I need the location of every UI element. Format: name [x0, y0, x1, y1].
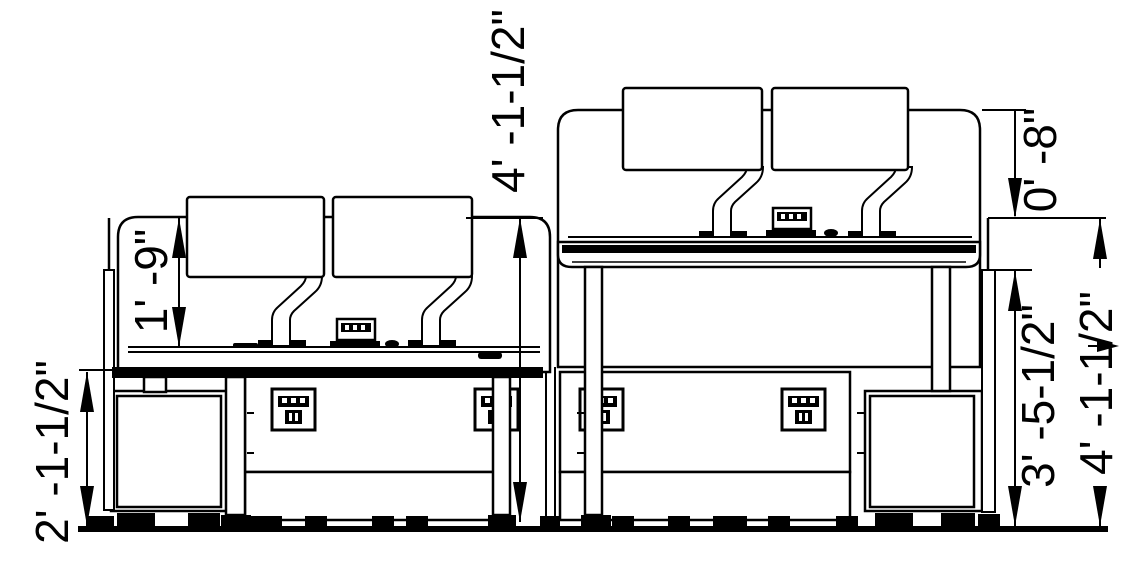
- dimension-label-right-screen-height: 3' -5-1/2": [1015, 304, 1061, 488]
- monitor: [333, 197, 472, 277]
- credenza-right: [560, 372, 850, 520]
- power-outlet-box: [272, 389, 315, 430]
- dimension-label-right-screen-top-offset: 0' -8": [1017, 108, 1063, 212]
- monitor: [187, 197, 324, 277]
- cable-grommet: [385, 340, 399, 348]
- monitor: [623, 88, 762, 170]
- desktop-power-strip: [330, 319, 380, 347]
- power-outlet-box: [782, 389, 825, 430]
- dimension-label-left-desk-height: 2' -1-1/2": [29, 360, 75, 544]
- credenza-left: [245, 372, 518, 520]
- frame-posts-center: [540, 367, 560, 527]
- monitor: [772, 88, 908, 170]
- privacy-screen-right: [558, 110, 980, 367]
- desk-item: [233, 343, 258, 348]
- cable-grommet: [824, 229, 838, 237]
- pedestal-left: [111, 391, 228, 527]
- workstation-right: [558, 88, 1000, 528]
- dimension-label-left-overall-height: 4' -1-1/2": [485, 9, 531, 193]
- worksurface-right: [558, 237, 980, 267]
- pedestal-right: [857, 391, 982, 527]
- dimension-label-right-overall-height: 4' -1-1/2": [1073, 291, 1119, 475]
- end-screen-left: [86, 218, 114, 528]
- desktop-power-strip: [766, 208, 816, 236]
- elevation-drawing-canvas: 2' -1-1/2" 1' -9" 4' -1-1/2" 0' -8" 3' -…: [0, 0, 1146, 561]
- dimension-label-left-screen-above-desk: 1' -9": [128, 229, 174, 333]
- desk-item: [478, 352, 502, 359]
- end-screen-right: [978, 218, 1000, 528]
